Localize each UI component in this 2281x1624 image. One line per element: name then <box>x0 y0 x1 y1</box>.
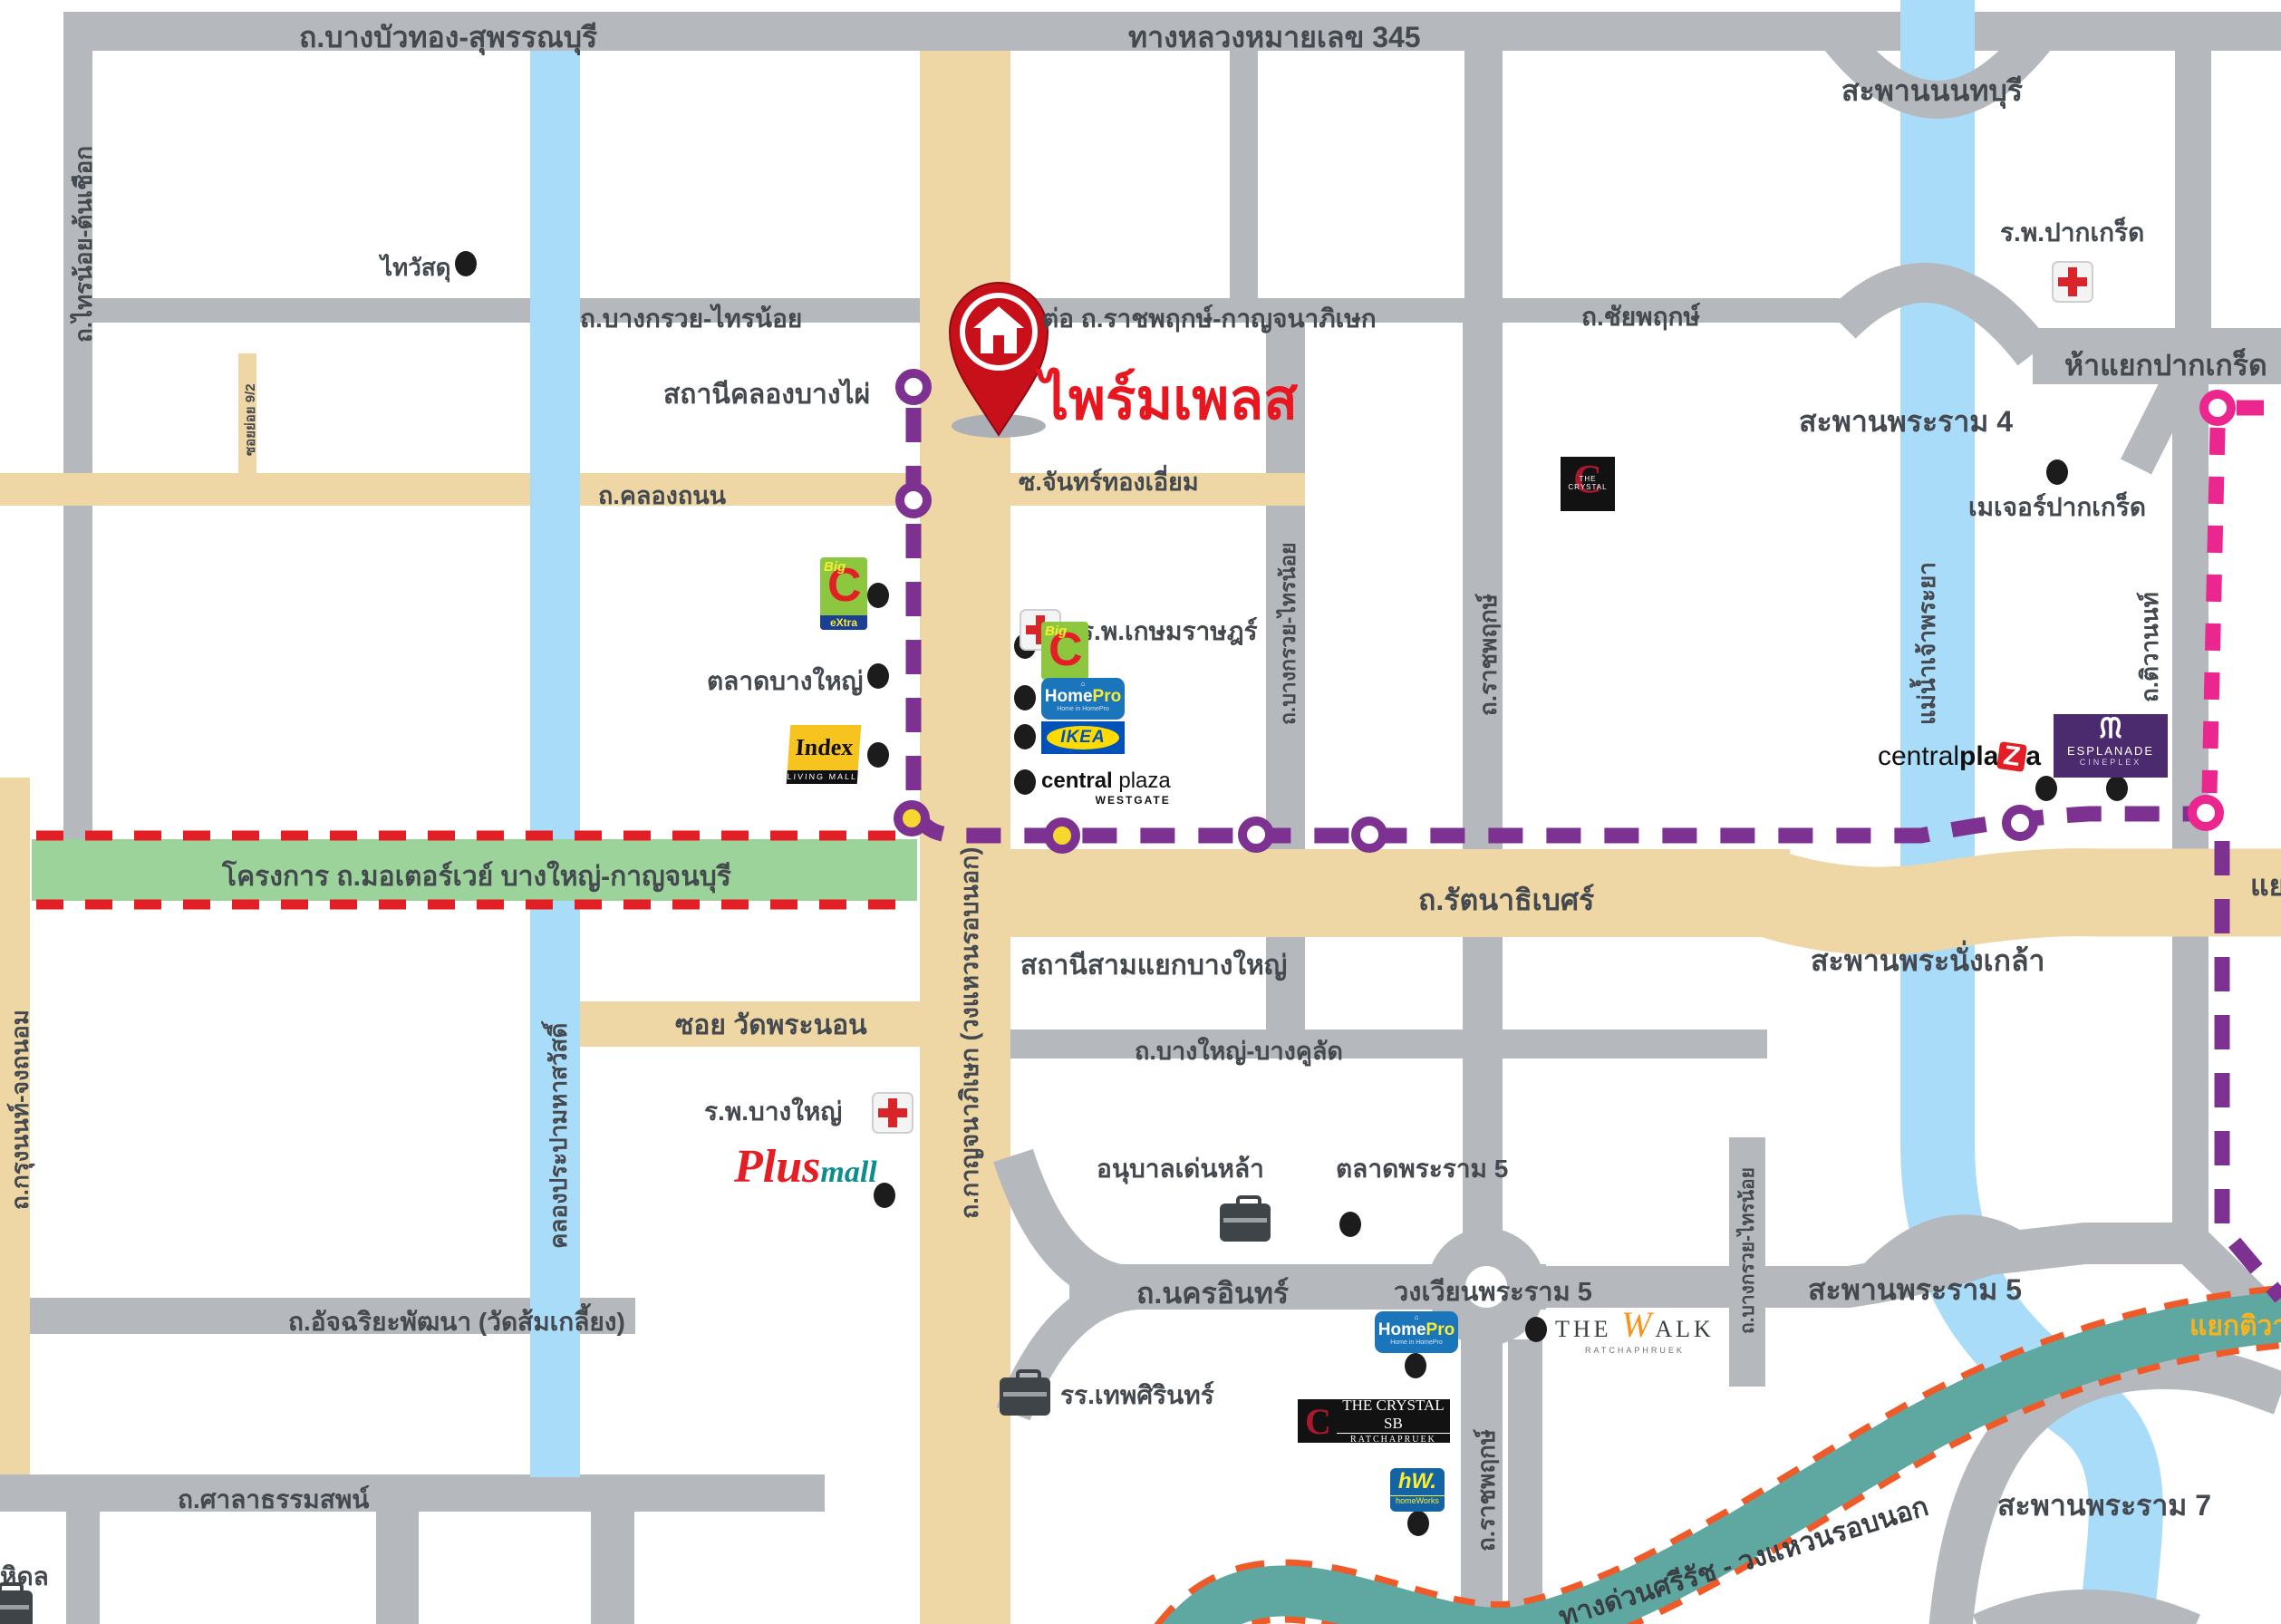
label-kanchanaphisek: ถ.กาญจนาภิเษก (วงแหวนรอบนอก) <box>950 847 989 1220</box>
station-4 <box>1351 817 1387 853</box>
label-atchariya: ถ.อัจฉริยะพัฒนา (วัดส้มเกลี้ยง) <box>288 1302 625 1342</box>
label-soi-watphranon: ซอย วัดพระนอน <box>675 1004 867 1047</box>
station-5 <box>2002 805 2038 841</box>
label-bangbuathong: ถ.บางบัวทอง-สุพรรณบุรี <box>299 14 597 61</box>
school-icon-mahidol <box>0 1590 33 1624</box>
homeworks-logo: hW. homeWorks <box>1390 1468 1445 1512</box>
label-saphan-rama7: สะพานพระราม 7 <box>1997 1483 2211 1529</box>
label-krungnon: ถ.กรุงนนท์-จงถนอม <box>2 1010 39 1210</box>
poi-dot-homepro <box>1014 685 1036 710</box>
the-crystal-sb-logo: C THE CRYSTAL SB RATCHAPRUEK <box>1298 1399 1450 1443</box>
school-icon-thepsirin <box>1000 1377 1050 1416</box>
label-yaek-tiwanon: แยกติวานนท์ <box>2189 1305 2281 1348</box>
label-saphan-phranangklao: สะพานพระนั่งเกล้า <box>1811 938 2045 984</box>
bigc-extra-logo: Big C eXtra <box>820 557 867 630</box>
school-icon-denla <box>1220 1203 1271 1242</box>
label-rp-bangyai: ร.พ.บางใหญ่ <box>704 1092 842 1132</box>
homepro-ratchaphruek-logo: ⌂ HomePro Home in HomePro <box>1375 1311 1458 1353</box>
poi-dot-ikea <box>1014 724 1036 749</box>
label-saladhammasop: ถ.ศาลาธรรมสพน์ <box>178 1480 369 1520</box>
the-walk-logo: THE WALK RATCHAPHRUEK <box>1555 1303 1715 1355</box>
label-khlong-prapa: คลองประปามหาสวัสดิ์ <box>540 1023 577 1249</box>
poi-dot-thewalk <box>1525 1317 1547 1342</box>
label-khlong-thanon: ถ.คลองถนน <box>598 476 726 515</box>
label-highway345: ทางหลวงหมายเลข 345 <box>1128 14 1421 61</box>
label-rp-kasemrad: ร.พ.เกษมราษฎร์ <box>1080 612 1258 652</box>
label-bangkruai-sainoi-v2: ถ.บางกรวย-ไทรน้อย <box>1733 1167 1763 1334</box>
poi-dot-esplanade <box>2106 776 2128 801</box>
label-saphan-rama4: สะพานพระราม 4 <box>1799 399 2013 445</box>
station-3 <box>1238 817 1274 853</box>
rattanathibet-river-crossing <box>1767 893 2281 911</box>
poi-dot-thaiwatsadu <box>455 251 477 276</box>
label-major-pakkret: เมเจอร์ปากเกร็ด <box>1968 488 2146 527</box>
ikea-logo: IKEA <box>1041 721 1125 754</box>
label-talad-rama5: ตลาดพระราม 5 <box>1336 1149 1508 1189</box>
label-chaiyaphruek: ถ.ชัยพฤกษ์ <box>1581 297 1700 337</box>
centralplaza-rattanathibet-logo: centralplaZa <box>1878 741 2041 772</box>
label-talad-bangyai: ตลาดบางใหญ่ <box>707 662 863 701</box>
label-ratchaphruek-ext: ต่อ ถ.ราชพฤกษ์-กาญจนาภิเษก <box>1042 299 1377 339</box>
label-station-samyaek: สถานีสามแยกบางใหญ่ <box>1020 944 1287 987</box>
esplanade-cineplex-logo: ᙏ ESPLANADE CINEPLEX <box>2054 714 2168 778</box>
label-saphan-nonthaburi: สะพานนนทบุรี <box>1841 68 2023 114</box>
poi-dot-talad-bangyai <box>867 663 889 689</box>
label-bangkruai-sainoi-v1: ถ.บางกรวย-ไทรน้อย <box>1272 543 1305 726</box>
label-rp-pakkret: ร.พ.ปากเกร็ด <box>2000 213 2144 253</box>
mrt-pink-line <box>2209 428 2218 793</box>
hospital-cross-bangyai <box>872 1092 913 1134</box>
poi-dot-bigc-extra <box>867 583 889 608</box>
label-bangkruai-sainoi: ถ.บางกรวย-ไทรน้อย <box>580 299 802 339</box>
index-living-mall-logo: Index LIVING MALL <box>787 725 862 784</box>
the-crystal-logo: C THE CRYSTAL <box>1561 457 1615 511</box>
station-2 <box>895 482 932 518</box>
poi-dot-homeworks <box>1407 1511 1429 1536</box>
label-ratchaphruek-v2: ถ.ราชพฤกษ์ <box>1468 1429 1505 1551</box>
prime-place-title: ไพร์มเพลส <box>1040 355 1298 444</box>
label-soi-chanthong-iam: ซ.จันทร์ทองเอี่ยม <box>1019 462 1199 501</box>
station-pink-interchange <box>2188 795 2224 831</box>
homepro-logo: ⌂ HomePro Home in HomePro <box>1041 678 1125 720</box>
plusmall-logo: Plusmall <box>734 1140 877 1194</box>
label-thepsirin: รร.เทพศิรินทร์ <box>1060 1376 1214 1416</box>
poi-dot-centralplaza <box>2035 776 2057 801</box>
poi-dot-talad-rama5 <box>1339 1212 1361 1237</box>
label-hayaek-pakkret: ห้าแยกปากเกร็ด <box>2064 343 2267 389</box>
poi-dot-major <box>2046 459 2068 485</box>
station-yellow-2 <box>1044 817 1080 854</box>
station-khlong-bangphai <box>895 369 932 405</box>
station-pink-hayaek <box>2199 390 2236 426</box>
label-nakhon-in: ถ.นครอินทร์ <box>1136 1271 1289 1317</box>
bottom-right-arc <box>1980 1608 2193 1624</box>
label-station-khlong-bangphai: สถานีคลองบางไผ่ <box>663 373 870 416</box>
location-pin <box>950 283 1048 438</box>
station-corner-yellow <box>894 800 930 836</box>
poi-dot-homepro2 <box>1405 1353 1426 1378</box>
label-bangyai-bangkhulat: ถ.บางใหญ่-บางคูลัด <box>1135 1031 1343 1070</box>
label-rattanathibet: ถ.รัตนาธิเบศร์ <box>1418 877 1594 923</box>
label-tiwanon: ถ.ติวานนท์ <box>2131 592 2169 702</box>
label-thaiwatsadu: ไทวัสดุ <box>381 249 451 286</box>
bigc-logo: Big C <box>1041 622 1088 680</box>
label-ratchaphruek-v1: ถ.ราชพฤกษ์ <box>1470 594 1507 716</box>
hospital-cross-pakkret <box>2052 261 2093 303</box>
poi-dot-index <box>867 742 889 768</box>
map-canvas: ถ.บางบัวทอง-สุพรรณบุรี ทางหลวงหมายเลข 34… <box>0 0 2281 1624</box>
label-sainoi-toncheuak: ถ.ไทรน้อย-ต้นเชือก <box>65 146 102 343</box>
label-soi-yoi: ซอยย่อย 9/2 <box>239 383 261 456</box>
label-saphan-rama5: สะพานพระราม 5 <box>1808 1267 2022 1313</box>
label-yaek-khaerai: แยกแคราย <box>2250 863 2281 909</box>
label-chaophraya: แม่น้ำเจ้าพระยา <box>1909 562 1946 725</box>
label-motorway: โครงการ ถ.มอเตอร์เวย์ บางใหญ่-กาญจนบุรี <box>222 855 731 898</box>
centralplaza-westgate-logo: central plaza WESTGATE <box>1041 768 1171 807</box>
label-anuban-denla: อนุบาลเด่นหล้า <box>1097 1149 1264 1189</box>
poi-dot-cpwestgate <box>1014 769 1036 795</box>
